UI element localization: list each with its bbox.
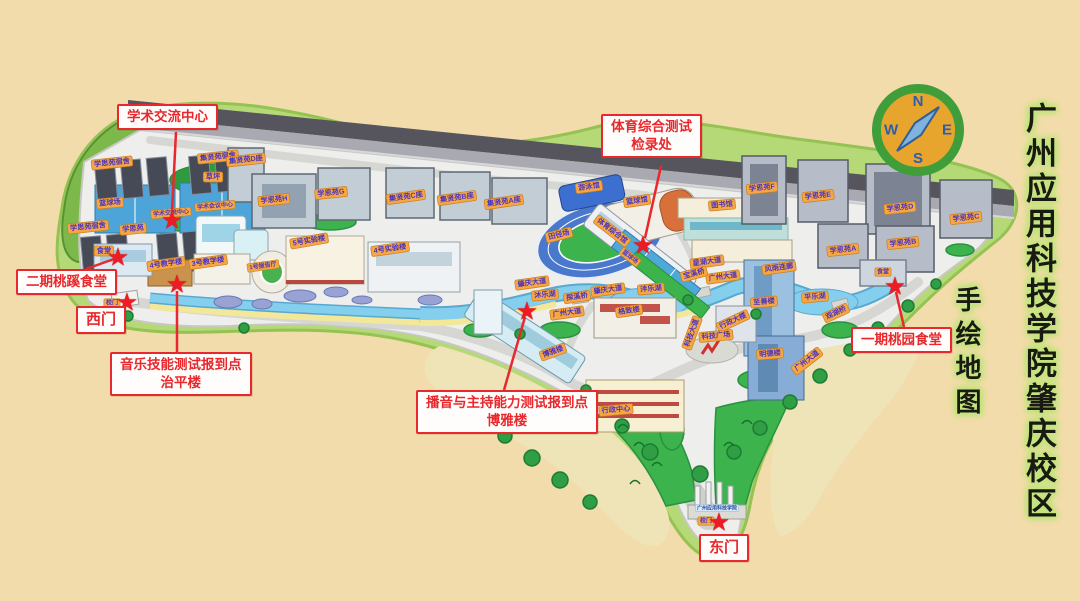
map-subtitle: 手绘地图 [948, 286, 985, 422]
compass-west-label: W [884, 123, 898, 138]
bld-lab5-base [286, 280, 364, 284]
bld-xuesiyuan-g [318, 168, 370, 220]
callout-music-test-line1: 音乐技能测试报到点 [120, 356, 242, 374]
callout-sports-test: 体育综合测试 检录处 [601, 114, 702, 158]
callout-music-test: 音乐技能测试报到点 治平楼 [110, 352, 252, 396]
bld-gezhi-stripe1 [600, 304, 660, 312]
map-title: 广州应用科技学院肇庆校区 [1016, 102, 1061, 522]
bld-admin-building [716, 306, 756, 342]
marker-star-sports-test: ★ [632, 233, 654, 258]
callout-east-gate: 东门 [699, 534, 749, 562]
bld-jixianyuan-a [492, 178, 547, 224]
bld-xuesiyuan-e [798, 160, 848, 222]
bld-lab4-glass [376, 252, 452, 266]
bld-lab5 [286, 236, 364, 284]
bld-xuesiyuan-c [940, 180, 992, 238]
campus-map: 学思苑宿舍集贤苑宿舍学思苑宿舍学思苑食堂篮球场草坪集贤苑D座学思苑H学思苑G集贤… [0, 0, 1080, 601]
callout-broadcast-test-line1: 播音与主持能力测试报到点 [426, 394, 588, 412]
bld-lab4 [368, 242, 460, 292]
compass: N E S W [872, 84, 964, 176]
callout-academic-exchange: 学术交流中心 [117, 104, 218, 130]
callout-west-gate: 西门 [76, 306, 126, 334]
callout-sports-test-line2: 检录处 [611, 136, 692, 154]
callout-canteen-phase1: 一期桃园食堂 [851, 327, 952, 353]
compass-east-label: E [942, 123, 952, 138]
compass-south-label: S [913, 151, 923, 166]
marker-star-canteen2: ★ [107, 245, 129, 270]
bld-hall1-roof [261, 260, 283, 284]
bld-jixianyuan-b [440, 172, 490, 220]
compass-north-label: N [913, 94, 924, 109]
bld-teach3 [194, 254, 250, 284]
marker-star-boya: ★ [516, 299, 538, 324]
bridge-tanxi [572, 293, 589, 304]
callout-sports-test-line1: 体育综合测试 [611, 118, 692, 136]
callout-canteen-phase2: 二期桃蹊食堂 [16, 269, 117, 295]
admin-stripe2 [591, 402, 679, 406]
bld-gezhi-stripe2 [640, 316, 670, 324]
marker-star-canteen1: ★ [884, 274, 906, 299]
callout-broadcast-test: 播音与主持能力测试报到点 博雅楼 [416, 390, 598, 434]
admin-stripe1 [591, 390, 679, 394]
bld-mingde-glass [758, 344, 778, 392]
callout-music-test-line2: 治平楼 [120, 374, 242, 392]
bld-boya-tower [474, 290, 502, 334]
marker-star-academic: ★ [161, 208, 183, 233]
marker-star-zhiping: ★ [166, 272, 188, 297]
callout-broadcast-test-line2: 博雅楼 [426, 412, 588, 430]
marker-star-east-gate: ★ [708, 510, 730, 535]
bld-jixianyuan-c [386, 168, 434, 218]
admin-stripe3 [591, 414, 679, 418]
